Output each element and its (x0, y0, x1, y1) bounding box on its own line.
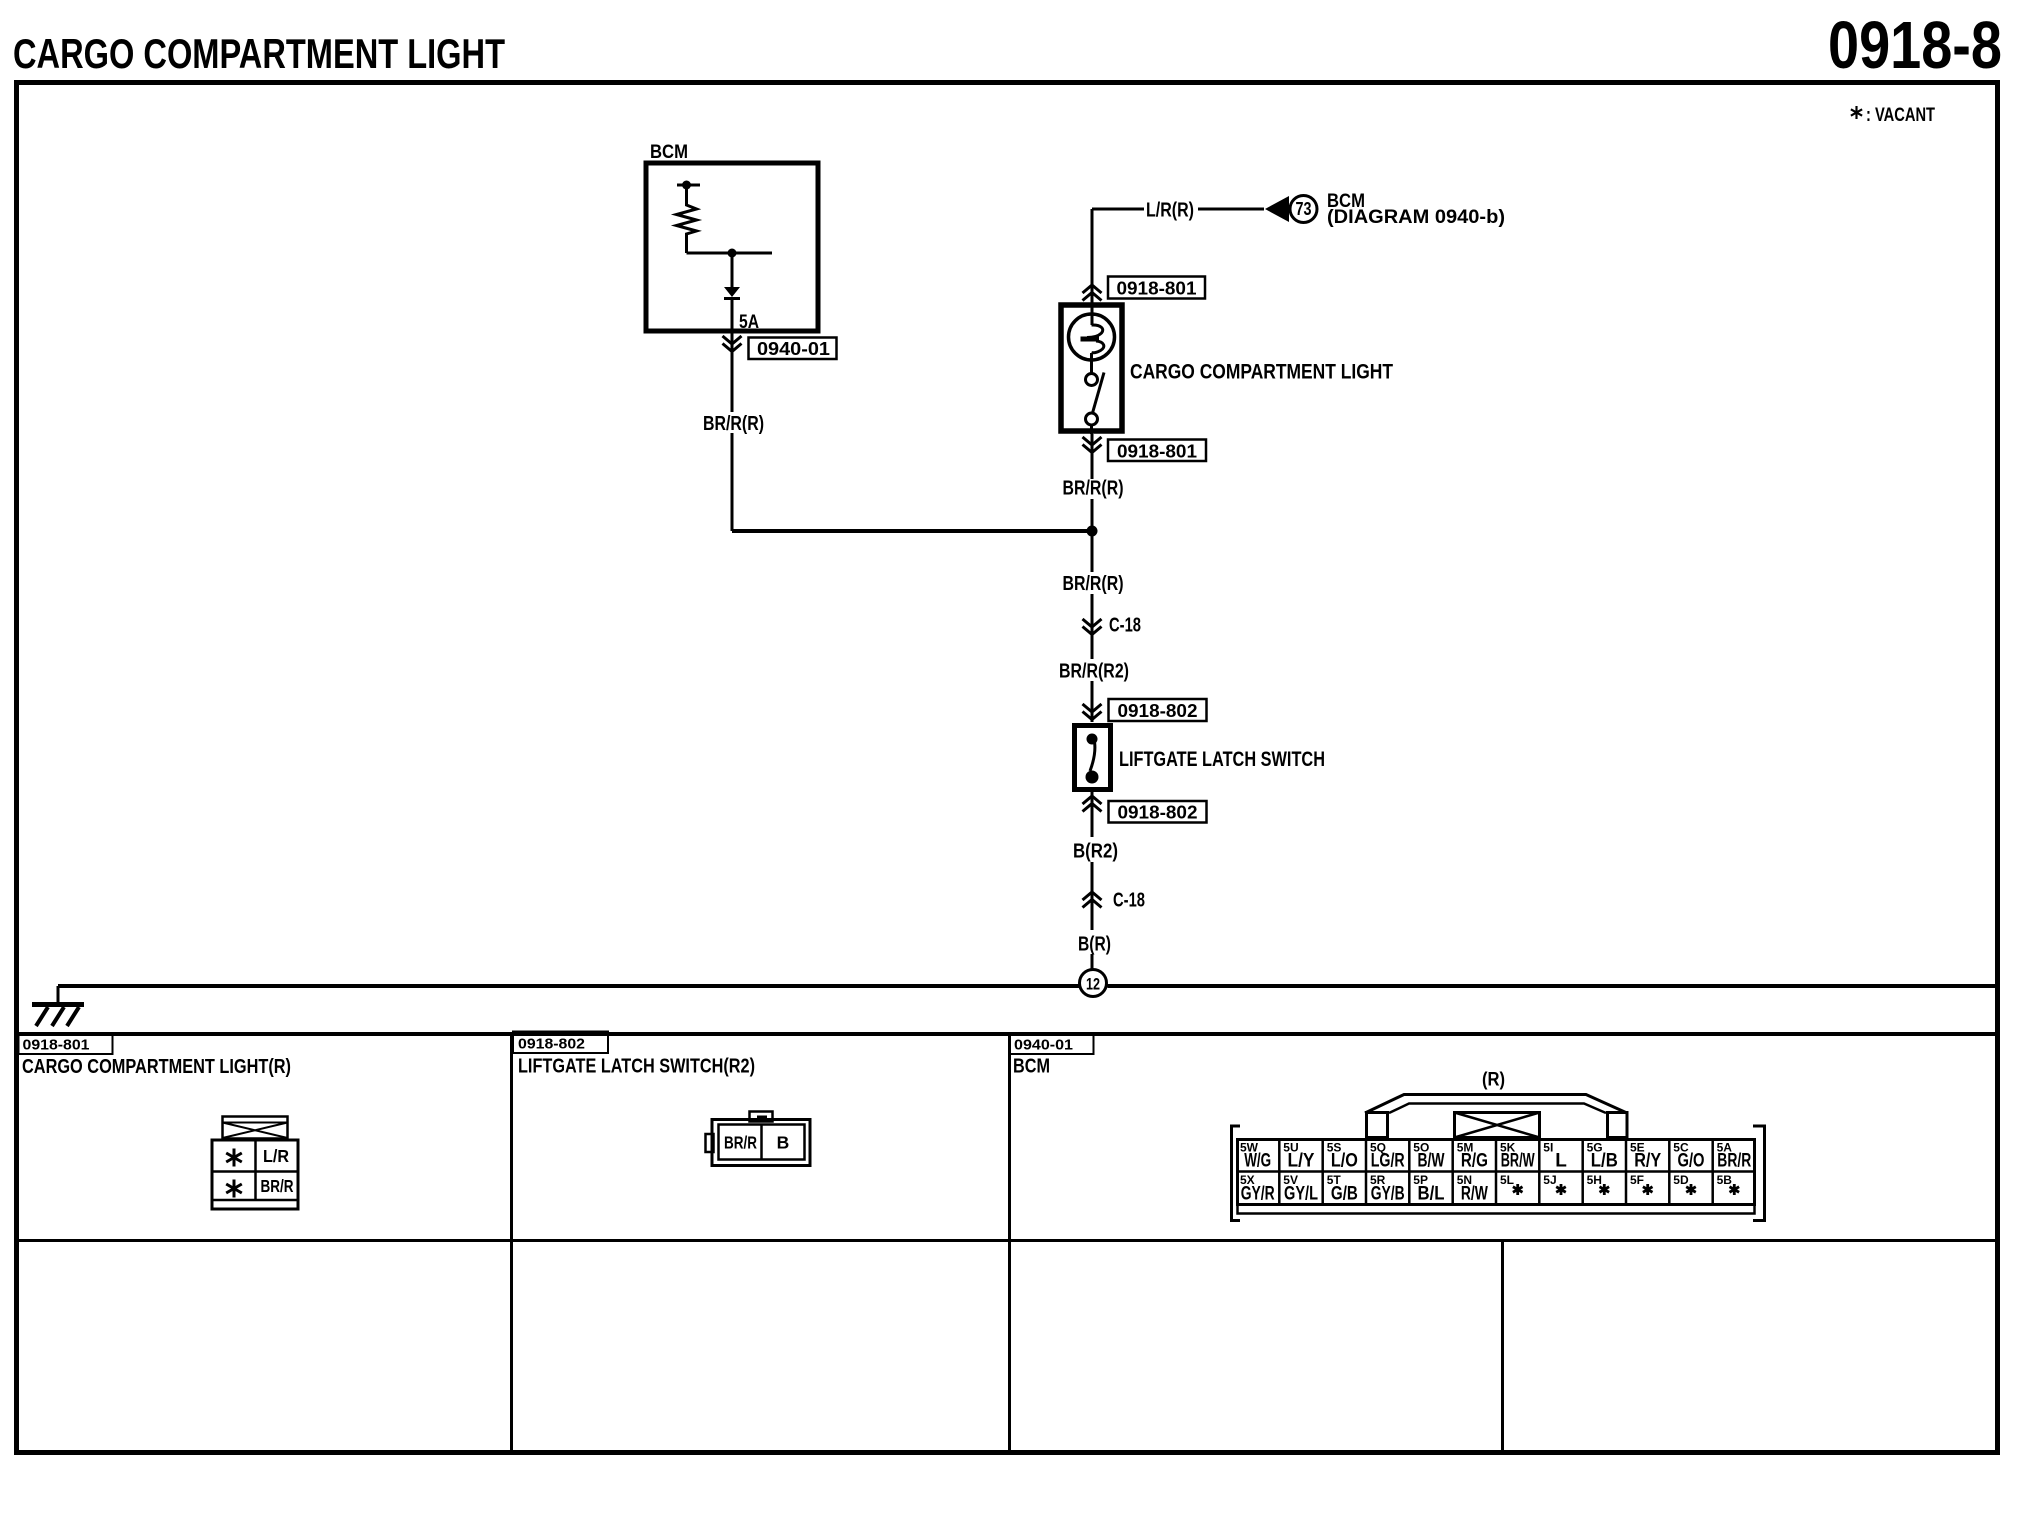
svg-text:B: B (777, 1133, 790, 1153)
svg-text:BR/R: BR/R (724, 1133, 757, 1153)
svg-text:BCM: BCM (1013, 1056, 1050, 1078)
svg-text:C-18: C-18 (1109, 615, 1141, 637)
svg-text:0940-01: 0940-01 (1014, 1037, 1073, 1054)
svg-text:0918-802: 0918-802 (518, 1036, 585, 1053)
svg-text:W/G: W/G (1244, 1151, 1271, 1172)
svg-text:B/L: B/L (1418, 1184, 1445, 1205)
svg-text:73: 73 (1296, 199, 1312, 219)
svg-text:0918-802: 0918-802 (1118, 701, 1198, 721)
svg-text:L/Y: L/Y (1288, 1151, 1315, 1172)
svg-text:0918-8: 0918-8 (1828, 8, 2002, 83)
svg-text:C-18: C-18 (1113, 890, 1145, 912)
svg-text:G/O: G/O (1678, 1151, 1705, 1172)
svg-text:GY/B: GY/B (1371, 1184, 1405, 1205)
svg-text:R/W: R/W (1461, 1184, 1488, 1205)
svg-text:0940-01: 0940-01 (757, 339, 830, 359)
svg-text:CARGO COMPARTMENT LIGHT: CARGO COMPARTMENT LIGHT (13, 30, 505, 77)
svg-text:5I: 5I (1543, 1141, 1553, 1155)
svg-text:R/G: R/G (1461, 1151, 1488, 1172)
svg-text:CARGO COMPARTMENT LIGHT(R): CARGO COMPARTMENT LIGHT(R) (22, 1056, 291, 1078)
svg-text:G/B: G/B (1331, 1184, 1358, 1205)
svg-text:BR/R(R): BR/R(R) (1063, 478, 1124, 500)
svg-text:0918-801: 0918-801 (23, 1037, 90, 1054)
svg-text:B(R2): B(R2) (1073, 841, 1118, 863)
svg-text:BR/R(R): BR/R(R) (1063, 573, 1124, 595)
svg-text:L/B: L/B (1591, 1151, 1618, 1172)
svg-text:(DIAGRAM 0940-b): (DIAGRAM 0940-b) (1327, 207, 1505, 228)
svg-text:R/Y: R/Y (1634, 1151, 1661, 1172)
svg-text:0918-801: 0918-801 (1117, 279, 1197, 299)
svg-text:BCM: BCM (650, 142, 688, 163)
svg-text:L/R(R): L/R(R) (1146, 200, 1194, 222)
svg-text:BR/R: BR/R (1717, 1151, 1751, 1172)
svg-text:BR/R(R2): BR/R(R2) (1059, 661, 1129, 683)
svg-text:5A: 5A (739, 312, 759, 333)
svg-text:B(R): B(R) (1078, 934, 1111, 956)
svg-text:CARGO COMPARTMENT LIGHT: CARGO COMPARTMENT LIGHT (1130, 361, 1393, 384)
svg-text:0918-801: 0918-801 (1117, 442, 1197, 462)
svg-text:5F: 5F (1630, 1173, 1644, 1187)
svg-text:GY/R: GY/R (1241, 1184, 1275, 1205)
svg-text:LIFTGATE LATCH SWITCH: LIFTGATE LATCH SWITCH (1119, 748, 1325, 771)
svg-text:L/O: L/O (1331, 1151, 1358, 1172)
svg-text:LG/R: LG/R (1371, 1151, 1405, 1172)
svg-text:0918-802: 0918-802 (1118, 803, 1198, 823)
svg-text:L/R: L/R (263, 1146, 289, 1166)
svg-text:BR/R: BR/R (261, 1176, 294, 1196)
svg-text:5B: 5B (1717, 1173, 1733, 1187)
svg-text:BR/W: BR/W (1501, 1151, 1535, 1172)
svg-text:5J: 5J (1543, 1173, 1556, 1187)
svg-text:: VACANT: : VACANT (1866, 105, 1935, 126)
svg-text:BR/R(R): BR/R(R) (703, 413, 764, 435)
svg-text:L: L (1555, 1151, 1567, 1172)
svg-text:12: 12 (1086, 975, 1100, 994)
svg-text:(R): (R) (1482, 1070, 1505, 1091)
svg-text:5D: 5D (1673, 1173, 1689, 1187)
svg-text:5L: 5L (1500, 1173, 1514, 1187)
svg-text:B/W: B/W (1418, 1151, 1445, 1172)
svg-text:LIFTGATE LATCH SWITCH(R2): LIFTGATE LATCH SWITCH(R2) (518, 1056, 755, 1078)
svg-text:5H: 5H (1587, 1173, 1602, 1187)
svg-text:GY/L: GY/L (1284, 1184, 1318, 1205)
